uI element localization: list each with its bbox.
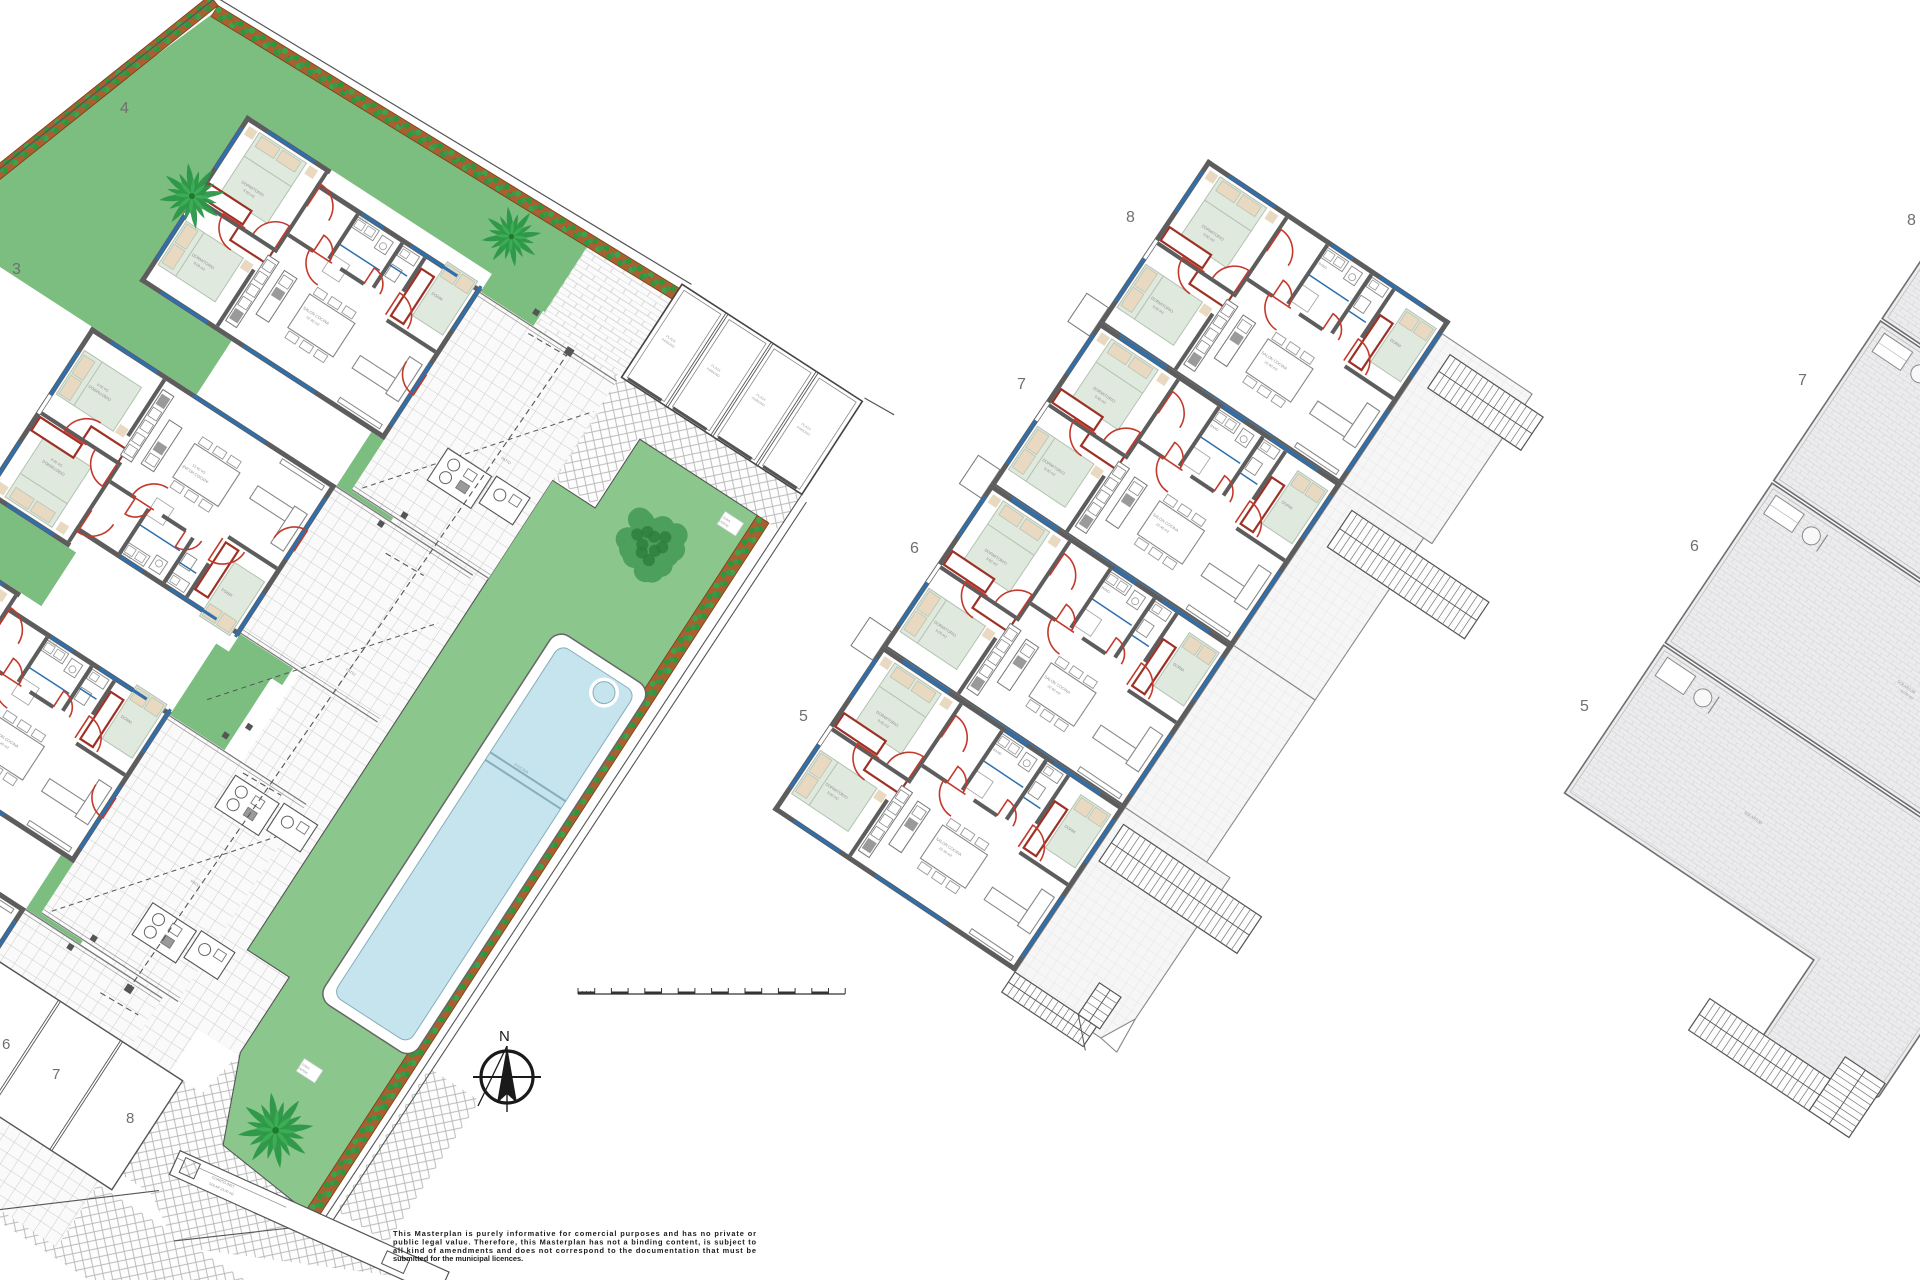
svg-text:7: 7 <box>52 1066 60 1083</box>
svg-text:7: 7 <box>1798 372 1807 389</box>
svg-text:8: 8 <box>1126 209 1135 226</box>
svg-text:7: 7 <box>1017 376 1026 393</box>
svg-text:6: 6 <box>2 1036 10 1053</box>
svg-text:5: 5 <box>1580 698 1589 715</box>
svg-text:N: N <box>499 1028 510 1045</box>
svg-text:3: 3 <box>12 261 21 278</box>
svg-text:8: 8 <box>126 1110 134 1127</box>
svg-text:6: 6 <box>1690 538 1699 555</box>
svg-text:8: 8 <box>1907 212 1916 229</box>
svg-text:6: 6 <box>910 540 919 557</box>
svg-text:4: 4 <box>120 100 129 117</box>
svg-text:5: 5 <box>799 708 808 725</box>
svg-text:submitted for the municipal li: submitted for the municipal licences. <box>393 1254 523 1263</box>
